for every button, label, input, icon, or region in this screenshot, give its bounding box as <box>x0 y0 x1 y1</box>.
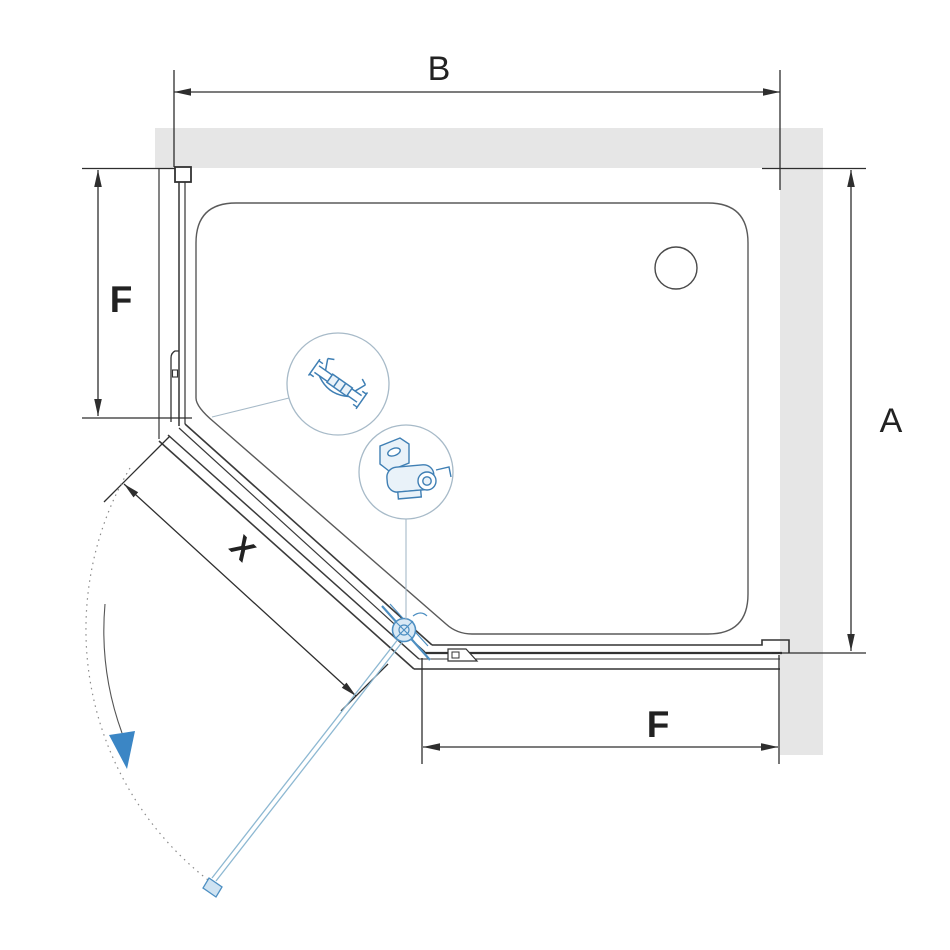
tray-outline <box>196 203 748 634</box>
arrowhead-up-icon <box>94 170 102 187</box>
dimension-f-left: F <box>82 169 192 419</box>
door-open-position <box>203 638 403 897</box>
dimension-b-label: B <box>428 50 451 88</box>
dimension-f-bottom-label: F <box>647 704 670 745</box>
shower-tray <box>196 203 748 634</box>
panel-clamp <box>171 351 179 422</box>
dimension-f-left-label: F <box>110 279 133 320</box>
wall-top <box>155 128 823 168</box>
arrowhead-down-icon <box>847 634 855 651</box>
left-fixed-panel <box>159 167 191 439</box>
arrowhead-right-icon <box>763 88 780 96</box>
arrowhead-up-icon <box>847 170 855 187</box>
swing-direction-arrow-icon <box>109 731 135 769</box>
dimension-x-label: X <box>223 529 263 569</box>
shower-enclosure-diagram: B A F F X <box>0 0 950 950</box>
wall-right <box>780 128 823 755</box>
dimension-b: B <box>174 50 780 190</box>
arrowhead-right-icon <box>761 743 778 751</box>
dimension-a-label: A <box>880 402 903 440</box>
bottom-fixed-panel <box>414 640 789 669</box>
shower-diagram-canvas: B A F F X <box>0 0 950 950</box>
arrowhead-left-icon <box>174 88 191 96</box>
arrowhead-left-icon <box>423 743 440 751</box>
door-swing-arc <box>86 468 216 886</box>
wall-profile-bracket <box>175 167 191 182</box>
dimension-f-bottom: F <box>422 655 779 764</box>
swing-direction-arc <box>104 604 122 733</box>
arrowhead-down-icon <box>94 399 102 416</box>
door-bottom-cap <box>203 878 222 897</box>
